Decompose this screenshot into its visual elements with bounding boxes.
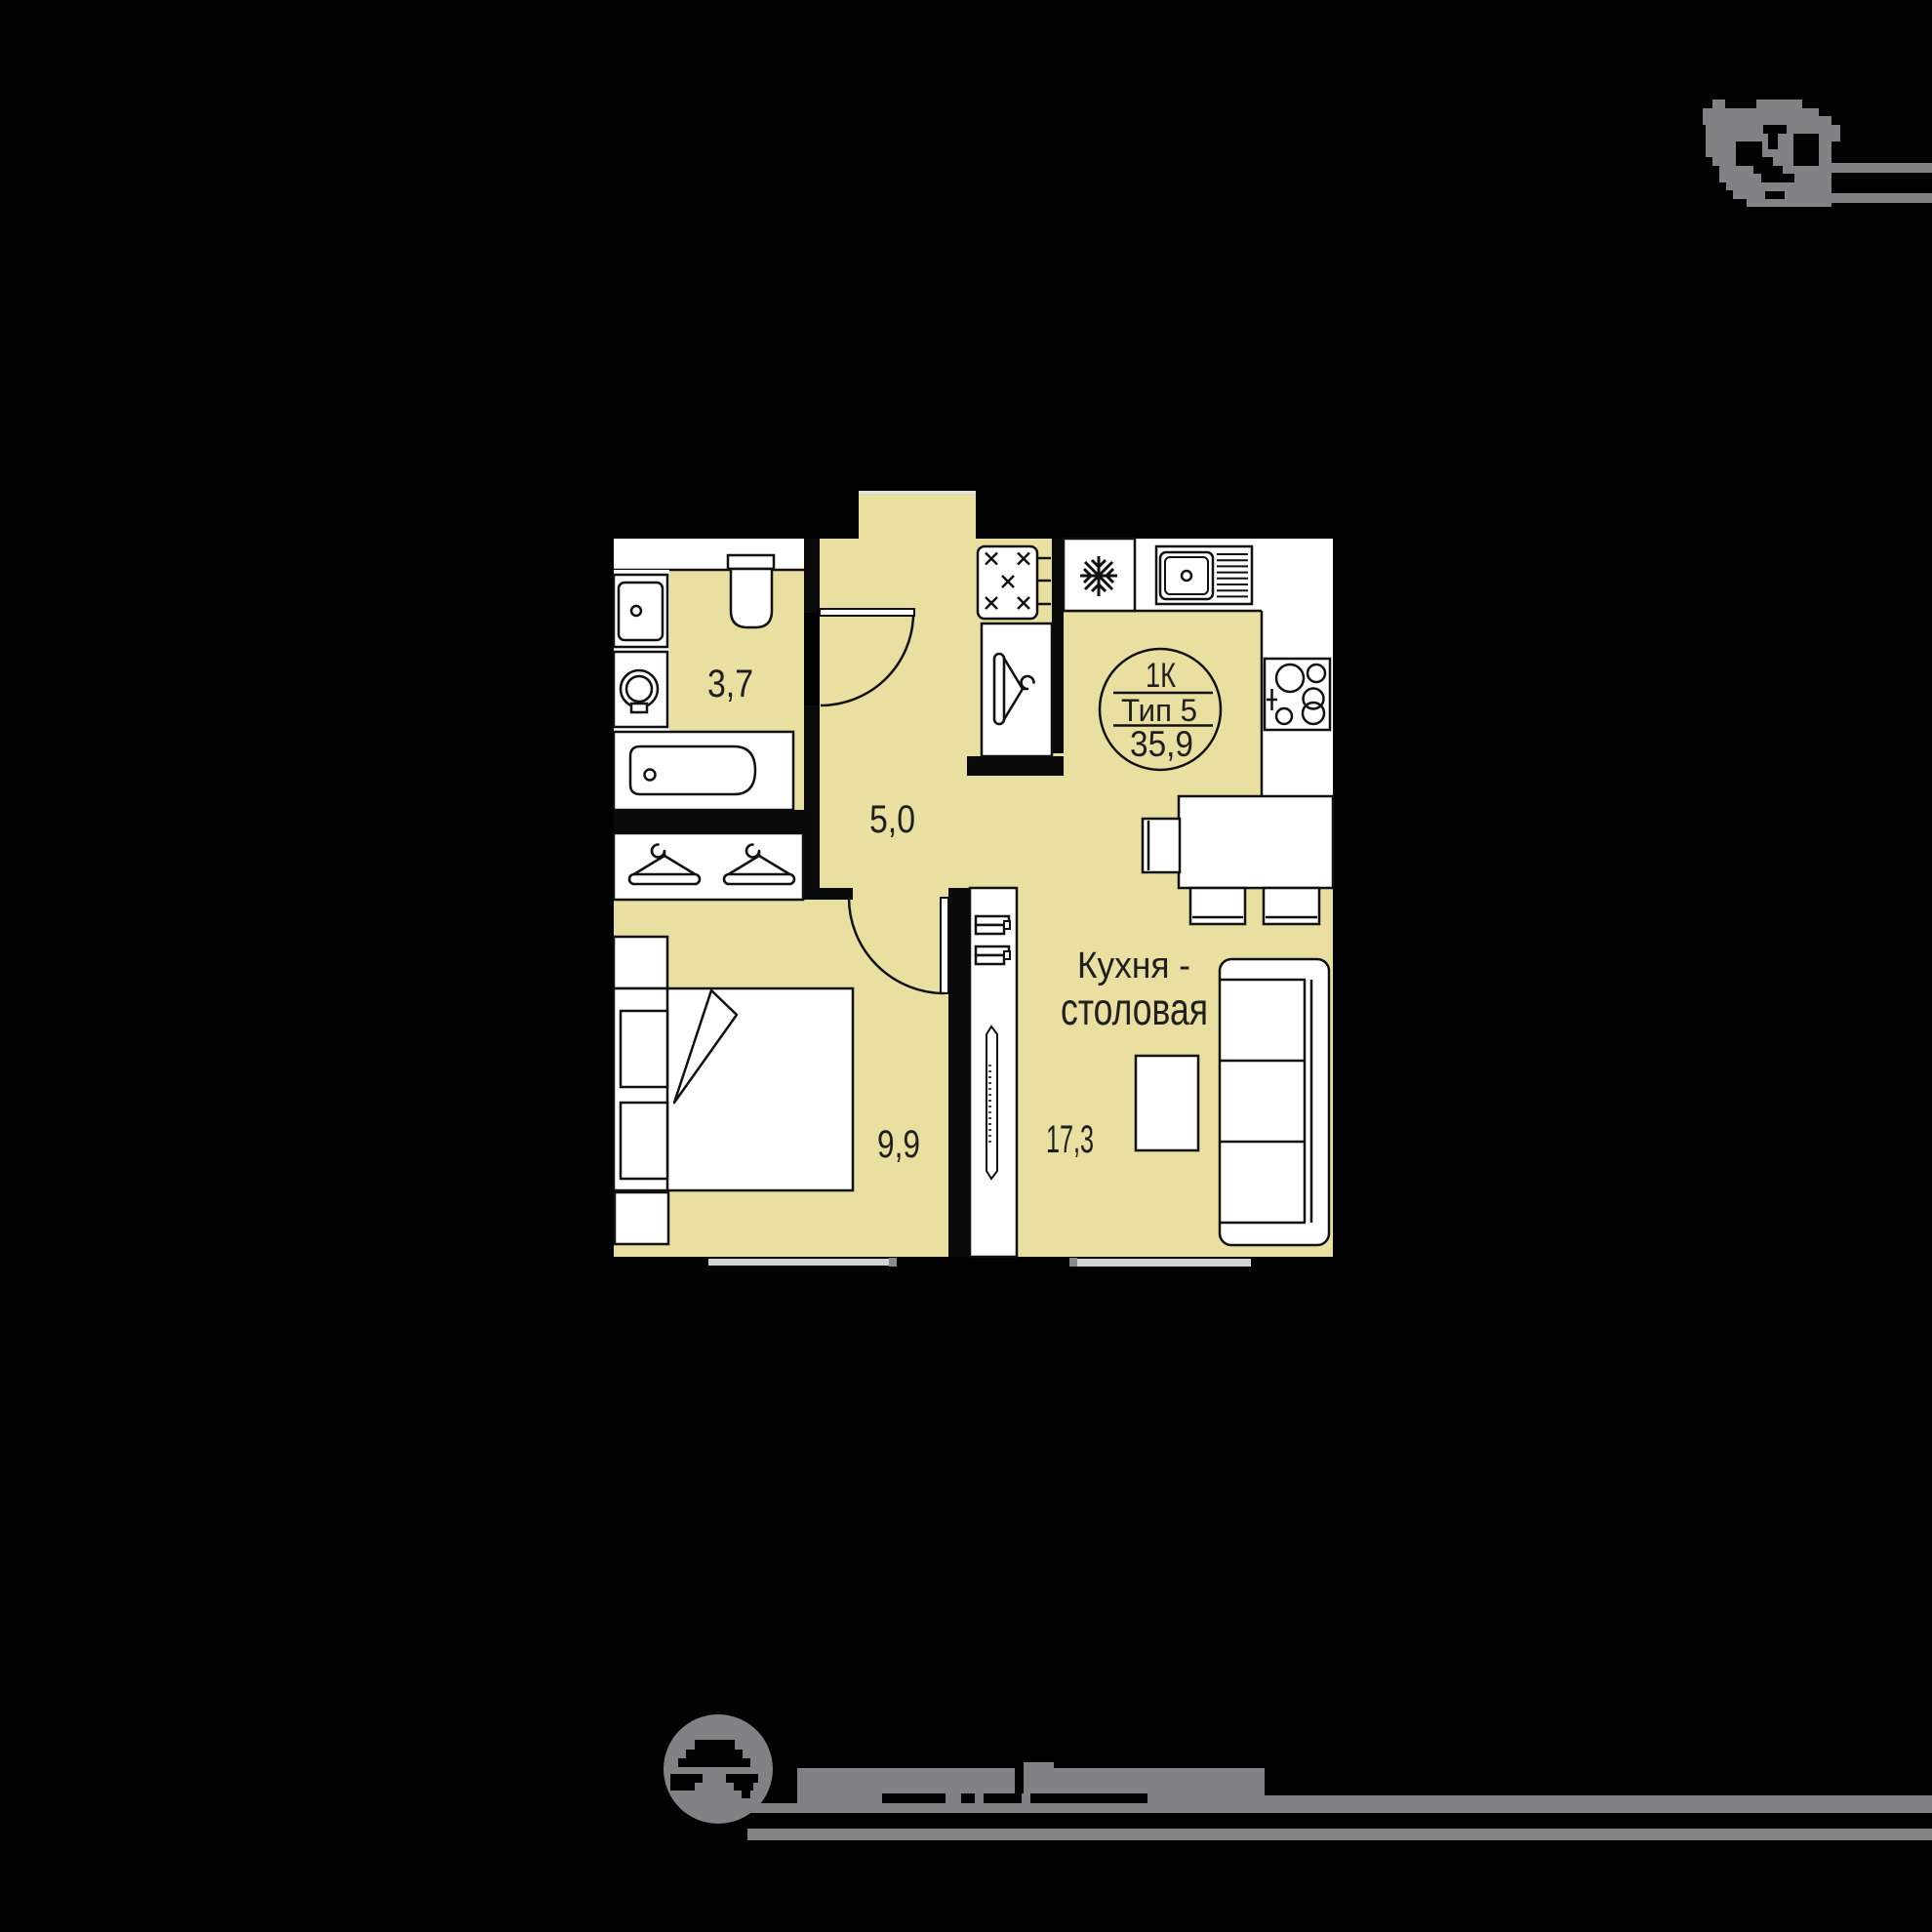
svg-text:5,0: 5,0 (869, 798, 915, 841)
svg-text:Тип 5: Тип 5 (1121, 693, 1197, 728)
svg-text:9,9: 9,9 (877, 1123, 920, 1166)
svg-text:1К: 1К (1146, 657, 1176, 695)
svg-text:3,7: 3,7 (707, 663, 753, 705)
svg-text:Кухня -: Кухня - (1077, 946, 1190, 986)
svg-text:35,9: 35,9 (1130, 724, 1193, 764)
svg-text:17,3: 17,3 (1046, 1118, 1094, 1161)
svg-text:столовая: столовая (1061, 984, 1208, 1034)
